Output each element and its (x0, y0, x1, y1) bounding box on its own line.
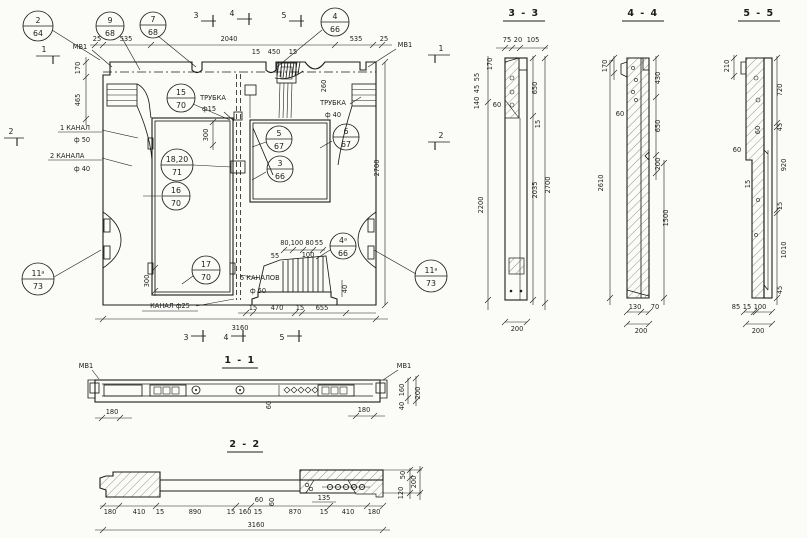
s33-dim-170: 170 (486, 58, 494, 71)
mark-4-top: 4 (230, 9, 235, 18)
svg-text:70: 70 (176, 101, 186, 110)
kanal25-label: КАНАЛ ф25 (150, 302, 190, 310)
svg-text:73: 73 (426, 279, 436, 288)
s44-dim-2610: 2610 (597, 175, 605, 192)
s55-dim-60b: 60 (754, 126, 762, 134)
dim-470: 470 (271, 304, 284, 312)
svg-text:7: 7 (151, 15, 156, 24)
dim-cluster-55l: 55 (271, 252, 279, 260)
svg-text:4: 4 (333, 12, 338, 21)
s33-dim-45: 45 (473, 85, 481, 93)
s44-dim-130: 130 (629, 303, 642, 311)
panel-working-drawing: 1 2 1 2 3 4 5 3 4 5 МВ1 МВ1 25 535 2040 … (0, 0, 807, 538)
dim-300-top: 300 (202, 129, 210, 142)
s55-dim-15b: 15 (743, 303, 751, 311)
svg-text:67: 67 (274, 142, 284, 151)
dim-cluster-row: 80,100 80 (280, 239, 314, 247)
mark-2-left: 2 (9, 127, 14, 136)
svg-text:5: 5 (277, 129, 282, 138)
s22-dim-120: 120 (397, 487, 405, 500)
dim-170-left: 170 (74, 62, 82, 75)
top-rib-band (275, 62, 303, 79)
section-5-5-title: 5 - 5 (743, 8, 774, 19)
s11-mv1-right: МВ1 (397, 362, 411, 370)
s22-dim-135: 135 (318, 494, 331, 502)
s11-mv1-left: МВ1 (79, 362, 93, 370)
s22-dim-15d: 15 (320, 508, 328, 516)
mv1-label-top-right: МВ1 (398, 41, 412, 49)
s44-dim-60: 60 (616, 110, 624, 118)
dim-535-left: 535 (120, 35, 133, 43)
s11-dim-40: 40 (398, 402, 406, 410)
s33-dim-75: 75 (503, 36, 511, 44)
s22-dim-3160: 3160 (248, 521, 265, 529)
svg-text:68: 68 (148, 28, 158, 37)
callout-11a-73-left: 11ᵃ73 (22, 263, 54, 295)
dim-2700-main: 2700 (373, 160, 381, 177)
s44-dim-70: 70 (651, 303, 659, 311)
svg-text:73: 73 (33, 282, 43, 291)
s33-dim-2700: 2700 (544, 177, 552, 194)
svg-text:64: 64 (33, 29, 43, 38)
mark-5-bottom: 5 (280, 333, 285, 342)
svg-text:9: 9 (108, 16, 113, 25)
s55-dim-45a: 45 (776, 123, 784, 131)
s22-dim-870: 870 (289, 508, 302, 516)
s44-dim-1500: 1500 (662, 210, 670, 227)
section-1-1-title: 1 - 1 (224, 355, 255, 366)
section-4-4-title: 4 - 4 (627, 8, 658, 19)
section-3-3-title: 3 - 3 (508, 8, 539, 19)
s33-dim-60: 60 (493, 101, 501, 109)
s22-dim-410l: 410 (133, 508, 146, 516)
s11-dim-180-right: 180 (358, 406, 371, 414)
s44-dim-170: 170 (601, 60, 609, 73)
dim-300-bottom: 300 (143, 275, 151, 288)
mv1-label-top-left: МВ1 (73, 43, 87, 51)
dim-15-b: 15 (289, 48, 297, 56)
callout-4-66: 466 (321, 8, 349, 36)
s33-dim-2035: 2035 (531, 182, 539, 199)
trubka40-label: ТРУБКА (319, 99, 346, 107)
mark-1-left: 1 (42, 45, 47, 54)
kanal2-label: 2 КАНАЛА (50, 152, 85, 160)
s33-dim-105: 105 (527, 36, 540, 44)
s33-dim-2200: 2200 (477, 197, 485, 214)
svg-text:11ᵃ: 11ᵃ (32, 269, 45, 278)
main-elevation-view: 1 2 1 2 3 4 5 3 4 5 МВ1 МВ1 25 535 2040 … (4, 8, 450, 342)
left-corbel (107, 84, 152, 160)
trubka15-label: ТРУБКА (199, 94, 226, 102)
section-3-3: 3 - 3 75 20 105 170 55 45 140 60 650 15 … (473, 8, 552, 333)
dim-40: 40 (341, 285, 349, 293)
s22-dim-160: 160 (239, 508, 252, 516)
s55-dim-60a: 60 (733, 146, 741, 154)
right-edge-detail (358, 212, 376, 268)
section-4-4: 4 - 4 170 2610 430 650 200 1500 60 130 7… (597, 8, 670, 335)
s11-dim-160: 160 (398, 384, 406, 397)
s55-dim-1010: 1010 (780, 242, 788, 259)
dim-465-left: 465 (74, 94, 82, 107)
svg-text:4ᵃ: 4ᵃ (339, 236, 347, 245)
s22-dim-15b: 15 (227, 508, 235, 516)
left-channel-labels: 1 КАНАЛ ф 50 2 КАНАЛА ф 40 (48, 124, 138, 173)
s44-dim-650: 650 (654, 120, 662, 133)
mark-3-bottom: 3 (184, 333, 189, 342)
dim-655: 655 (316, 304, 329, 312)
s22-dim-50: 50 (399, 471, 407, 479)
s11-dim-180-left: 180 (106, 408, 119, 416)
left-edge-detail (103, 212, 121, 268)
s55-dim-100: 100 (754, 303, 767, 311)
dim-15-bot-a: 15 (249, 304, 257, 312)
door-opening (148, 118, 235, 295)
callout-16-70: 1670 (162, 182, 190, 210)
dim-535-right: 535 (350, 35, 363, 43)
dim-3160-main: 3160 (232, 324, 249, 332)
svg-text:18,20: 18,20 (166, 155, 188, 164)
s22-dim-60a: 60 (255, 496, 263, 504)
dim-25-right: 25 (380, 35, 388, 43)
kanal1-label: 1 КАНАЛ (60, 124, 90, 132)
s33-dim-140: 140 (473, 97, 481, 110)
callout-2-64: 264 (23, 11, 53, 41)
callout-3-66: 366 (267, 156, 293, 182)
svg-text:6: 6 (344, 127, 349, 136)
svg-text:16: 16 (171, 186, 181, 195)
dim-cluster-55r: 55 (315, 239, 323, 247)
svg-text:71: 71 (172, 168, 182, 177)
callout-6-67: 667 (333, 124, 359, 150)
mark-1-right: 1 (439, 44, 444, 53)
svg-text:70: 70 (171, 199, 181, 208)
callout-9-68: 968 (96, 12, 124, 40)
svg-text:67: 67 (341, 140, 351, 149)
dim-cluster-100: 100 (302, 251, 315, 259)
s33-dim-650: 650 (531, 82, 539, 95)
s22-dim-15a: 15 (156, 508, 164, 516)
s44-dim-200b: 200 (635, 327, 648, 335)
mark-3-top: 3 (194, 11, 199, 20)
kanal5-dia: ф 50 (250, 287, 266, 295)
kanal2-dia: ф 40 (74, 165, 90, 173)
mark-4-bottom: 4 (224, 333, 229, 342)
callout-4a-66: 4ᵃ66 (330, 233, 356, 259)
dim-2040: 2040 (221, 35, 238, 43)
svg-text:68: 68 (105, 29, 115, 38)
s22-dim-60b: 60 (268, 498, 276, 506)
svg-text:15: 15 (176, 88, 186, 97)
kanal5-label: 5 КАНАЛОВ (240, 274, 280, 282)
s55-dim-210: 210 (723, 60, 731, 73)
svg-text:2: 2 (36, 16, 41, 25)
svg-text:66: 66 (338, 249, 348, 258)
s55-dim-85: 85 (732, 303, 740, 311)
s33-dim-15: 15 (534, 120, 542, 128)
dim-15-a: 15 (252, 48, 260, 56)
svg-text:11ᵃ: 11ᵃ (425, 266, 438, 275)
callout-17-70: 1770 (192, 256, 220, 284)
callout-15-70: 1570 (167, 84, 195, 112)
dim-260: 260 (320, 80, 328, 93)
s55-dim-15s: 15 (744, 180, 752, 188)
section-2-2-title: 2 - 2 (229, 439, 260, 450)
mark-5-top: 5 (282, 11, 287, 20)
s55-dim-920: 920 (780, 159, 788, 172)
s55-dim-15: 15 (776, 202, 784, 210)
s33-dim-200: 200 (511, 325, 524, 333)
svg-text:17: 17 (201, 260, 211, 269)
s22-dim-15c: 15 (254, 508, 262, 516)
section-1-1: 1 - 1 МВ1 МВ1 180 180 60 160 40 200 (79, 355, 422, 421)
section-2-2: 2 - 2 180 410 15 890 15 160 15 870 15 41… (95, 439, 423, 533)
s11-dim-60: 60 (265, 401, 273, 409)
callout-1820-71: 18,2071 (161, 149, 193, 181)
mark-2-right: 2 (439, 131, 444, 140)
callout-11a-73-right: 11ᵃ73 (415, 260, 447, 292)
blueprint-page: 1 2 1 2 3 4 5 3 4 5 МВ1 МВ1 25 535 2040 … (0, 0, 807, 538)
dim-450: 450 (268, 48, 281, 56)
s44-dim-430: 430 (654, 72, 662, 85)
svg-text:70: 70 (201, 273, 211, 282)
section-5-5: 5 - 5 210 720 45 60 60 15 920 15 1010 45… (723, 8, 788, 335)
s55-dim-720: 720 (776, 84, 784, 97)
s44-dim-200: 200 (654, 158, 662, 171)
trubka15-dia: ф15 (202, 105, 216, 113)
s11-dim-200: 200 (414, 387, 422, 400)
s22-dim-180l: 180 (104, 508, 117, 516)
s55-dim-45b: 45 (776, 286, 784, 294)
kanal1-dia: ф 50 (74, 136, 90, 144)
svg-text:66: 66 (330, 25, 340, 34)
svg-text:3: 3 (278, 159, 283, 168)
s33-dim-20: 20 (514, 36, 522, 44)
central-channel (231, 63, 296, 300)
s22-dim-200: 200 (410, 476, 418, 489)
s22-dim-410r: 410 (342, 508, 355, 516)
callout-7-68: 768 (140, 12, 166, 38)
trubka40-dia: ф 40 (325, 111, 341, 119)
s33-dim-55: 55 (473, 73, 481, 81)
s22-dim-890: 890 (189, 508, 202, 516)
s22-dim-180r: 180 (368, 508, 381, 516)
s55-dim-200: 200 (752, 327, 765, 335)
callout-leaders (52, 30, 416, 306)
callout-5-67: 567 (266, 126, 292, 152)
dim-15-bot-b: 15 (296, 304, 304, 312)
svg-text:66: 66 (275, 172, 285, 181)
